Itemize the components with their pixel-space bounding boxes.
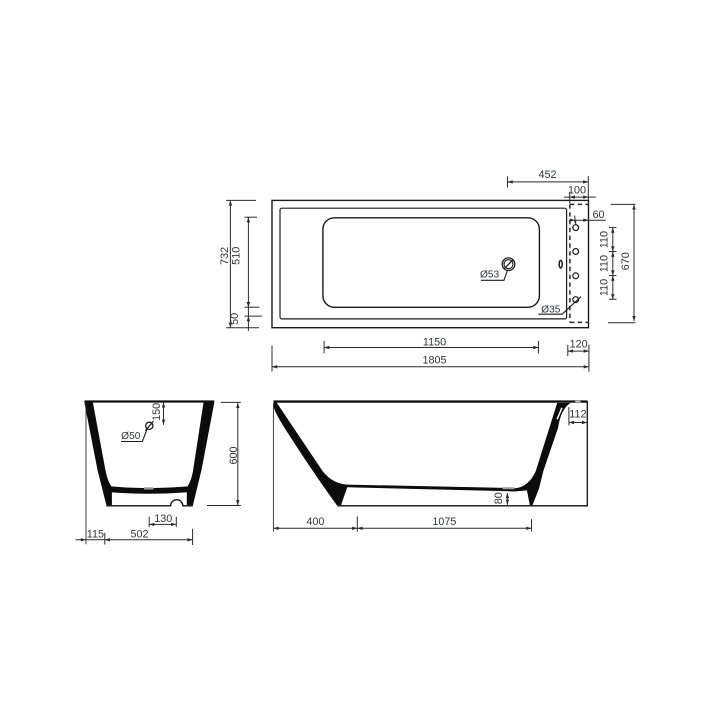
svg-text:Ø50: Ø50 [121,431,141,442]
svg-text:110: 110 [599,231,611,248]
svg-text:Ø53: Ø53 [480,270,500,281]
svg-text:1075: 1075 [432,516,456,528]
svg-text:130: 130 [154,513,172,525]
svg-text:100: 100 [568,185,586,197]
svg-text:112: 112 [569,409,586,421]
svg-text:600: 600 [228,446,240,464]
svg-text:452: 452 [538,169,556,181]
svg-text:400: 400 [306,516,324,528]
svg-text:1805: 1805 [422,354,446,366]
svg-text:Ø35: Ø35 [541,305,561,316]
svg-text:120: 120 [570,338,588,350]
svg-text:150: 150 [151,403,163,421]
svg-text:110: 110 [599,255,611,272]
svg-text:670: 670 [620,252,632,270]
svg-text:115: 115 [87,528,104,540]
svg-text:1150: 1150 [423,337,446,349]
svg-text:502: 502 [130,528,148,540]
svg-text:110: 110 [599,279,611,296]
svg-text:60: 60 [592,209,604,221]
svg-text:510: 510 [231,247,243,265]
svg-text:80: 80 [493,492,505,504]
svg-text:732: 732 [219,247,231,265]
svg-text:50: 50 [229,313,241,325]
